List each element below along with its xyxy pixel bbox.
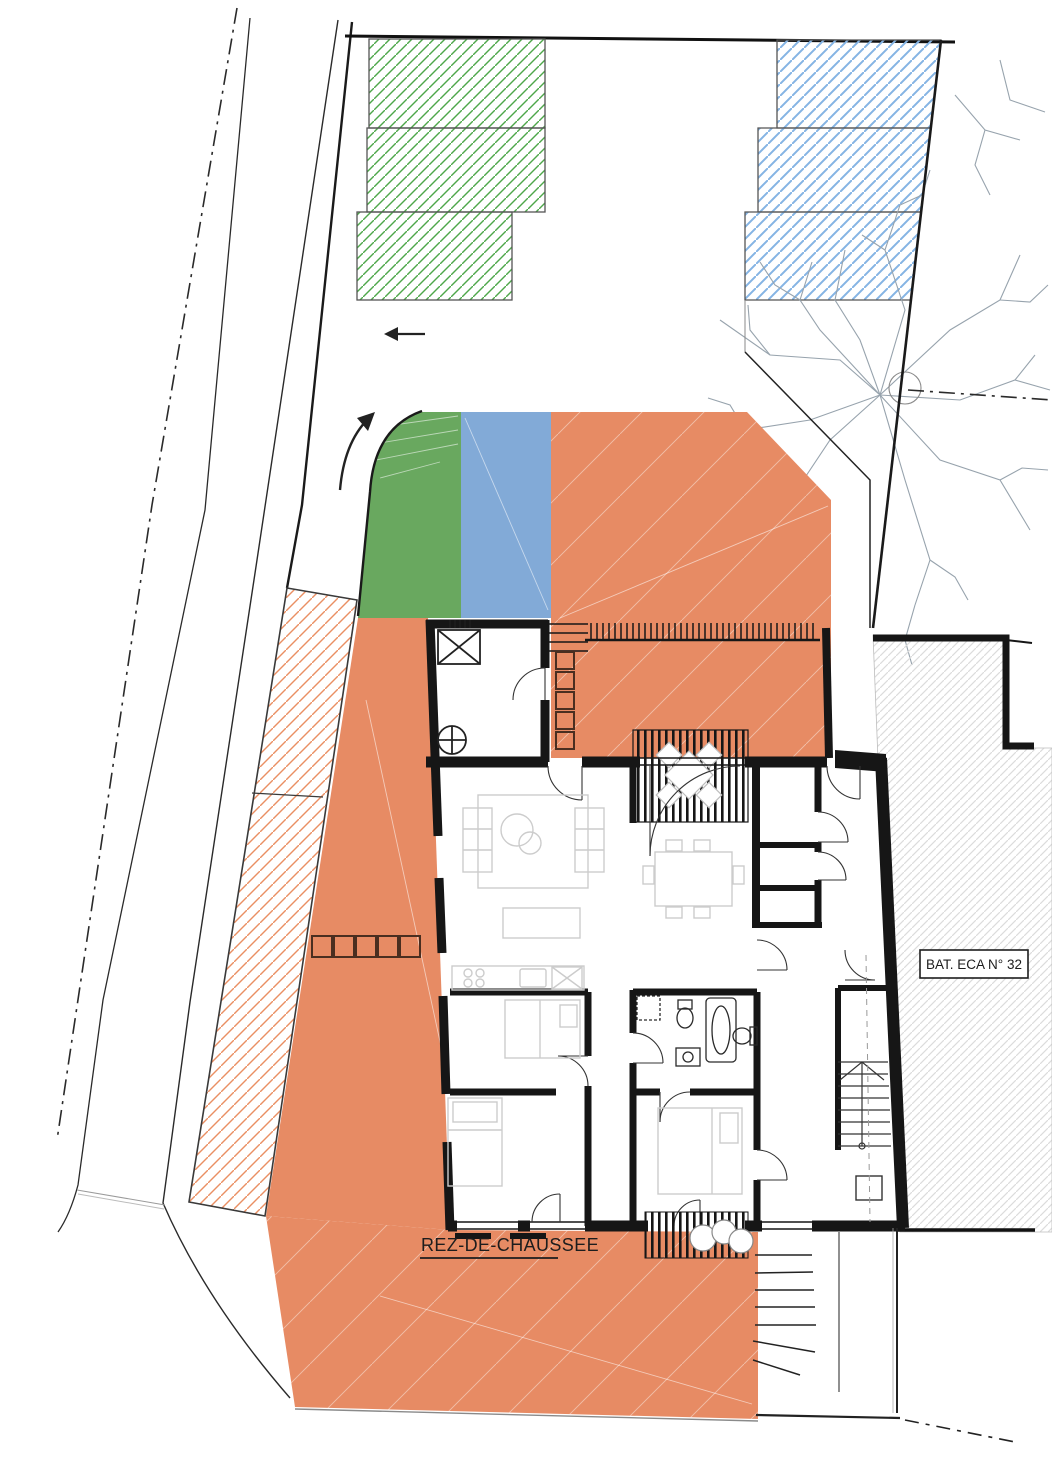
- driveway-line-1: [77, 1190, 165, 1205]
- kitchen-sink: [520, 969, 546, 987]
- rug: [478, 795, 588, 888]
- parcel-boundary-west: [287, 22, 352, 588]
- plan-svg: BAT. ECA N° 32: [0, 0, 1052, 1480]
- coffee-table: [501, 814, 533, 846]
- toilet: [677, 1008, 693, 1028]
- bush-3: [729, 1229, 753, 1253]
- hatched-block-green: [357, 39, 545, 300]
- entrance-porch: [645, 1212, 753, 1258]
- site-plan: BAT. ECA N° 32: [0, 0, 1052, 1480]
- blue-block-2: [758, 128, 931, 212]
- green-block-1: [369, 39, 545, 128]
- green-block-2: [367, 128, 545, 212]
- zones: [266, 411, 831, 1419]
- washer: [637, 996, 660, 1020]
- hedge-ticks: [587, 622, 818, 640]
- left-arrow-head: [384, 327, 398, 341]
- sideboard: [503, 908, 580, 938]
- bed-3: [658, 1108, 742, 1194]
- bathroom: [637, 996, 757, 1066]
- floor-label-group: REZ-DE-CHAUSSEE: [420, 1235, 599, 1258]
- terrace-east-wall: [826, 628, 829, 758]
- sofa-right: [575, 808, 604, 872]
- green-block-3: [357, 212, 512, 300]
- furniture: [448, 795, 882, 1200]
- zone-orange-upper-hatch: [551, 412, 831, 758]
- bed-2: [448, 1098, 502, 1186]
- stairs: [838, 955, 891, 1222]
- road-axis-dashdot: [57, 8, 237, 1140]
- blue-block-1: [777, 40, 941, 128]
- annex: [438, 620, 480, 754]
- outdoor-table: [656, 742, 721, 807]
- zone-blue: [461, 412, 551, 618]
- driveway-line-2: [78, 1194, 164, 1209]
- neighbor-label: BAT. ECA N° 32: [926, 957, 1022, 972]
- bed-1: [505, 1000, 580, 1058]
- blue-block-3: [745, 212, 921, 300]
- tree-trunk: [889, 372, 921, 404]
- dining-table: [655, 852, 732, 906]
- kitchen-counter: [452, 966, 584, 990]
- washbasin: [676, 1048, 700, 1066]
- bathtub: [706, 998, 736, 1062]
- curved-arrow: [340, 419, 368, 490]
- zone-green: [358, 412, 461, 618]
- floor-label: REZ-DE-CHAUSSEE: [421, 1235, 599, 1255]
